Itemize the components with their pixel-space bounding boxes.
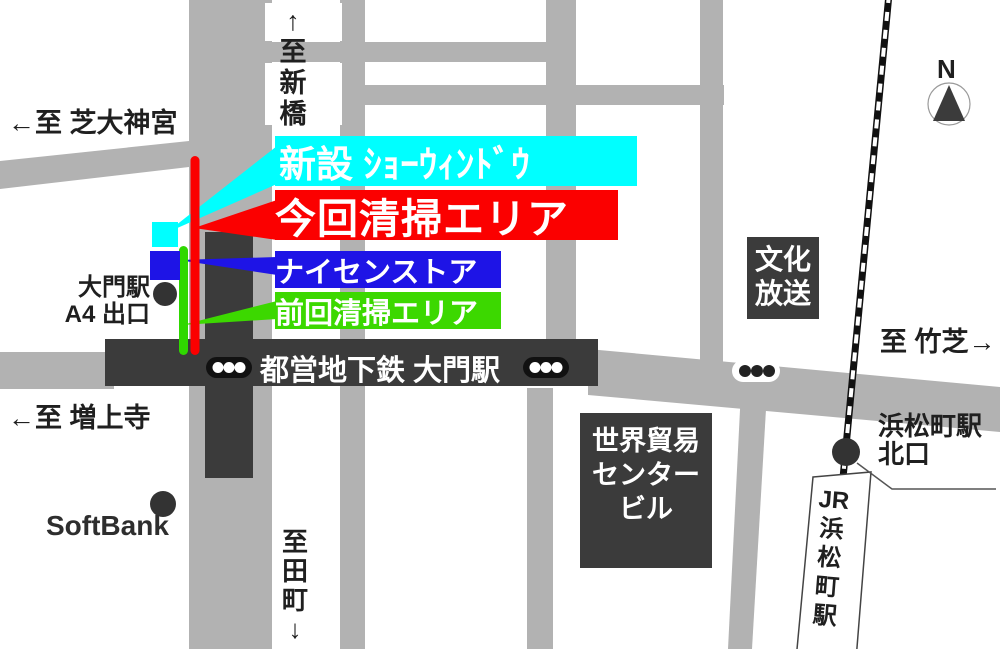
- label-new-show-window: 新設 ｼｮｰｳｨﾝﾄﾞｳ: [275, 136, 637, 186]
- toei-subway-daimon-label: 都営地下鉄 大門駅: [160, 347, 600, 389]
- daimon-a4-exit-dot: [153, 282, 177, 306]
- traffic-light-icon-east: [732, 360, 780, 382]
- direction-to-zojoji: ←至 増上寺: [8, 396, 151, 435]
- daimon-a4-exit-label: 大門駅 A4 出口: [50, 274, 150, 328]
- bunka-hoso-label: 文化 放送: [747, 243, 819, 311]
- hamamatsucho-north-exit-label: 浜松町駅 北口: [878, 412, 982, 468]
- world-trade-center-label: 世界貿易 センター ビル: [580, 424, 712, 526]
- direction-to-takeshiba: 至 竹芝→: [880, 320, 996, 359]
- current-cleaning-line: [191, 156, 200, 355]
- compass-north-label: N: [937, 54, 956, 85]
- street-horizontal-mid: [340, 85, 724, 105]
- arrow-down-icon: ↓: [289, 615, 302, 644]
- direction-to-shimbashi: ↑ 至 新 橋: [277, 6, 309, 130]
- street-to-shiba-daijingu: [0, 141, 189, 189]
- softbank-label: SoftBank: [46, 510, 169, 542]
- street-south-east-diagonal: [728, 390, 767, 649]
- compass-icon: [928, 83, 970, 125]
- label-previous-cleaning-area: 前回清掃エリア: [275, 292, 501, 329]
- show-window-marker: [152, 222, 178, 247]
- access-map: ↑ 至 新 橋 ←至 芝大神宮 ←至 増上寺 至 田 町 ↓ 至 竹芝→ 新設 …: [0, 0, 1000, 649]
- direction-to-shiba-daijingu: ←至 芝大神宮: [8, 101, 178, 140]
- direction-to-tamachi: 至 田 町 ↓: [280, 528, 310, 644]
- previous-cleaning-line: [179, 246, 188, 355]
- hamamatsucho-north-exit-dot: [832, 438, 860, 466]
- nicen-store-marker: [150, 251, 180, 280]
- arrow-up-icon: ↑: [286, 6, 300, 37]
- label-current-cleaning-area: 今回清掃エリア: [275, 190, 618, 240]
- street-horizontal-upper: [272, 42, 550, 62]
- street-vertical-4: [700, 0, 723, 365]
- street-west-stub: [0, 352, 114, 389]
- street-vertical-3-lower: [527, 388, 553, 649]
- label-nicen-store: ナイセンストア: [275, 251, 501, 288]
